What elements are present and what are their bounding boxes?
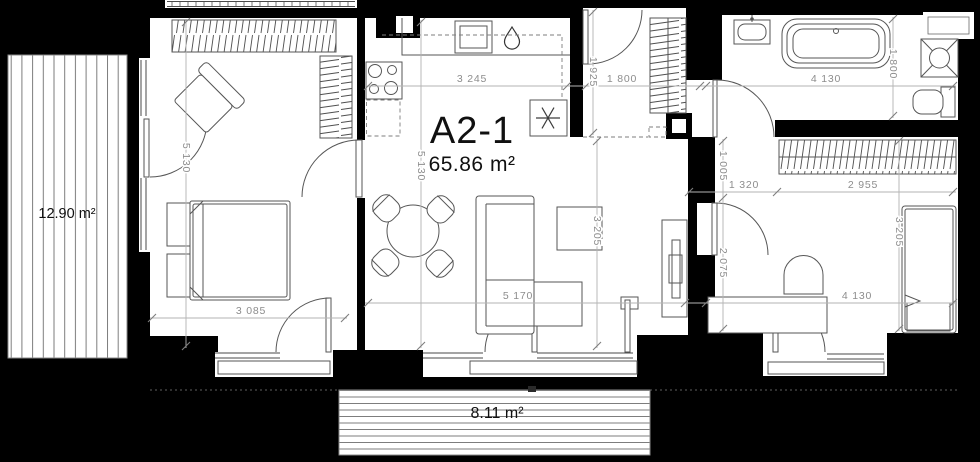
bedroom1-terrace-door-leaf [144,119,149,177]
dim-bedroom1-width: 3 085 [236,305,266,317]
dim-bedroom2-wardrobe: 2 955 [848,179,878,191]
shower [921,39,958,77]
dim-kitchen-width: 3 245 [457,73,487,85]
bathroom-niche [923,12,974,39]
terrace-left-area: 12.90 m² [38,206,95,222]
bathtub [782,19,890,68]
ottoman [534,282,582,326]
nightstand [167,203,190,246]
bedroom1-door-leaf [356,140,362,197]
bedroom2-window-sill [768,362,884,374]
dim-entry-depth: 1 925 [587,57,599,87]
bedroom1-balcony-door-leaf [326,298,331,352]
nightstand [167,254,190,297]
terrace-bottom-area: 8.11 m² [470,405,524,422]
stove [366,62,402,99]
hall-niche-opening [672,119,686,133]
terrace-bottom-planks [339,390,650,455]
shaft-opening [396,16,413,33]
floor-plan: A2-1 65.86 m² 12.90 m² 8.11 m² 3 245 1 8… [0,0,980,462]
dim-living-width: 5 170 [503,290,533,302]
dim-bathroom-width: 4 130 [811,73,841,85]
terrace-edge-mark [528,386,536,392]
dim-hall-width: 1 800 [607,73,637,85]
sofa [476,196,534,334]
dim-bedroom1-height: 5 130 [180,143,192,173]
unit-area: 65.86 m² [429,153,516,176]
unit-title: A2-1 [430,110,514,152]
dim-bedroom2-width: 4 130 [842,290,872,302]
wardrobe-bedroom1-top [172,20,336,52]
living-fixed-panel [625,300,630,352]
bathroom-wall-corner [686,8,722,80]
desk [708,297,827,333]
dim-bedroom2-height: 3 205 [893,217,905,247]
bedroom1-window-sill [218,361,330,374]
tv-unit [662,220,687,317]
living-window-sill [470,361,637,374]
bathroom-door-leaf [713,80,717,137]
dim-living-side: 3 205 [591,216,603,246]
bed-single [902,206,956,333]
bedroom1-top-window-glazing [167,2,355,7]
bed-double [190,201,290,300]
desk-chair [784,256,823,295]
dim-bedroom2-entry: 1 320 [729,179,759,191]
dim-bedroom2-doorwall: 2 075 [717,248,729,278]
dim-bathroom-depth: 1 800 [887,49,899,79]
appliance-asterisk-icon [530,100,567,136]
wardrobe-bedroom2 [779,140,956,174]
dim-hall-nook: 1 005 [717,151,729,181]
wardrobe-bedroom1-right [320,56,352,138]
wardrobe-hall [650,18,686,113]
floor-plan-canvas: A2-1 65.86 m² 12.90 m² 8.11 m² 3 245 1 8… [0,0,980,462]
bedroom2-door-leaf [712,203,717,255]
dim-living-height: 5 130 [415,151,427,181]
toilet [913,87,955,117]
